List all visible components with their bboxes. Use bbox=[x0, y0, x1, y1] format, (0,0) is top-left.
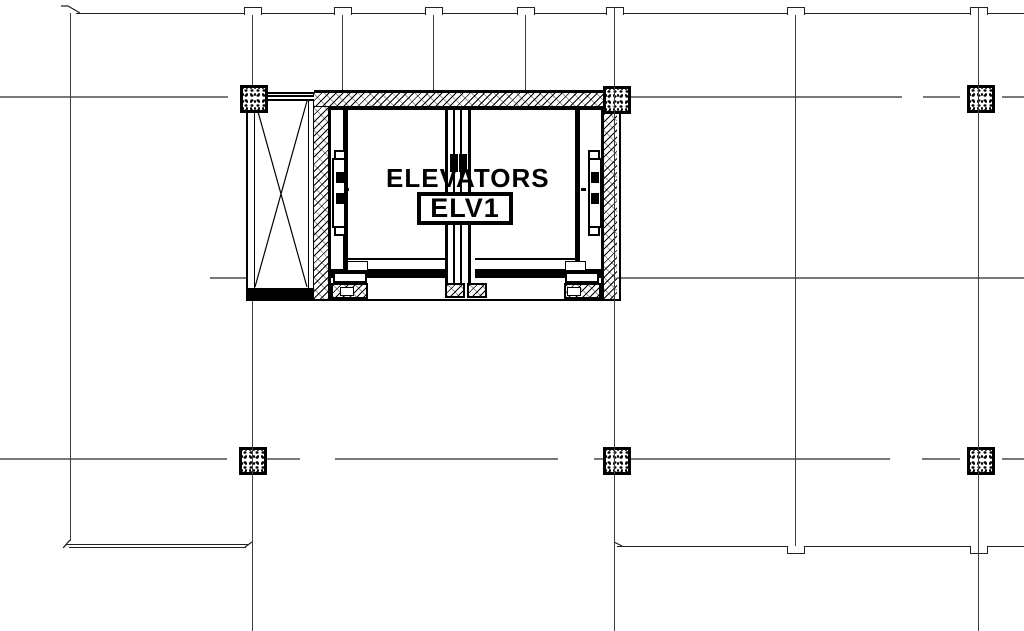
right-door-pocket bbox=[565, 272, 599, 283]
left-rail-bracket-arm bbox=[344, 188, 349, 191]
left-door-pocket bbox=[333, 272, 367, 283]
column-marker bbox=[967, 85, 995, 113]
column-marker bbox=[967, 447, 995, 475]
grid-line-v8 bbox=[978, 7, 979, 631]
hoistway-left-wall bbox=[314, 107, 331, 301]
left-rail-bracket-tab bbox=[334, 226, 346, 236]
hoistway-top-wall bbox=[314, 90, 619, 110]
center-door-jamb bbox=[445, 283, 465, 298]
elevator-tag-box: ELV1 bbox=[417, 192, 513, 225]
column-marker bbox=[239, 447, 267, 475]
right-rail-bracket-block bbox=[591, 193, 599, 204]
left-rail-bracket-block bbox=[336, 193, 344, 204]
grid-line-v6 bbox=[614, 7, 615, 631]
hoistway-bottom-outer-line bbox=[246, 299, 621, 301]
column-marker bbox=[240, 85, 268, 113]
grid-line-v2 bbox=[252, 301, 253, 631]
room-label: ELEVATORS bbox=[386, 167, 546, 189]
bottom-wall-inset-box bbox=[567, 287, 581, 296]
hoistway-right-outer-line bbox=[619, 92, 621, 301]
column-marker bbox=[603, 86, 631, 114]
right-car-wall bbox=[575, 110, 580, 275]
right-rail-bracket-block bbox=[591, 172, 599, 183]
center-door-jamb bbox=[467, 283, 487, 298]
right-rail-bracket-arm bbox=[581, 188, 586, 191]
right-car-bottom-line bbox=[475, 258, 575, 260]
left-car-bottom-line bbox=[348, 258, 445, 260]
column-marker bbox=[603, 447, 631, 475]
bottom-wall-inset-box bbox=[340, 287, 354, 296]
shaft-bottom-wall bbox=[248, 288, 315, 299]
left-rail-bracket-block bbox=[336, 172, 344, 183]
right-door-step bbox=[565, 261, 586, 271]
elevator-tag-label: ELV1 bbox=[430, 196, 500, 221]
shaft-top-double-line bbox=[261, 95, 314, 101]
right-rail-bracket-tab bbox=[588, 226, 600, 236]
floor-plan-canvas: ELEVATORS ELV1 bbox=[0, 0, 1024, 631]
left-door-step bbox=[347, 261, 368, 271]
